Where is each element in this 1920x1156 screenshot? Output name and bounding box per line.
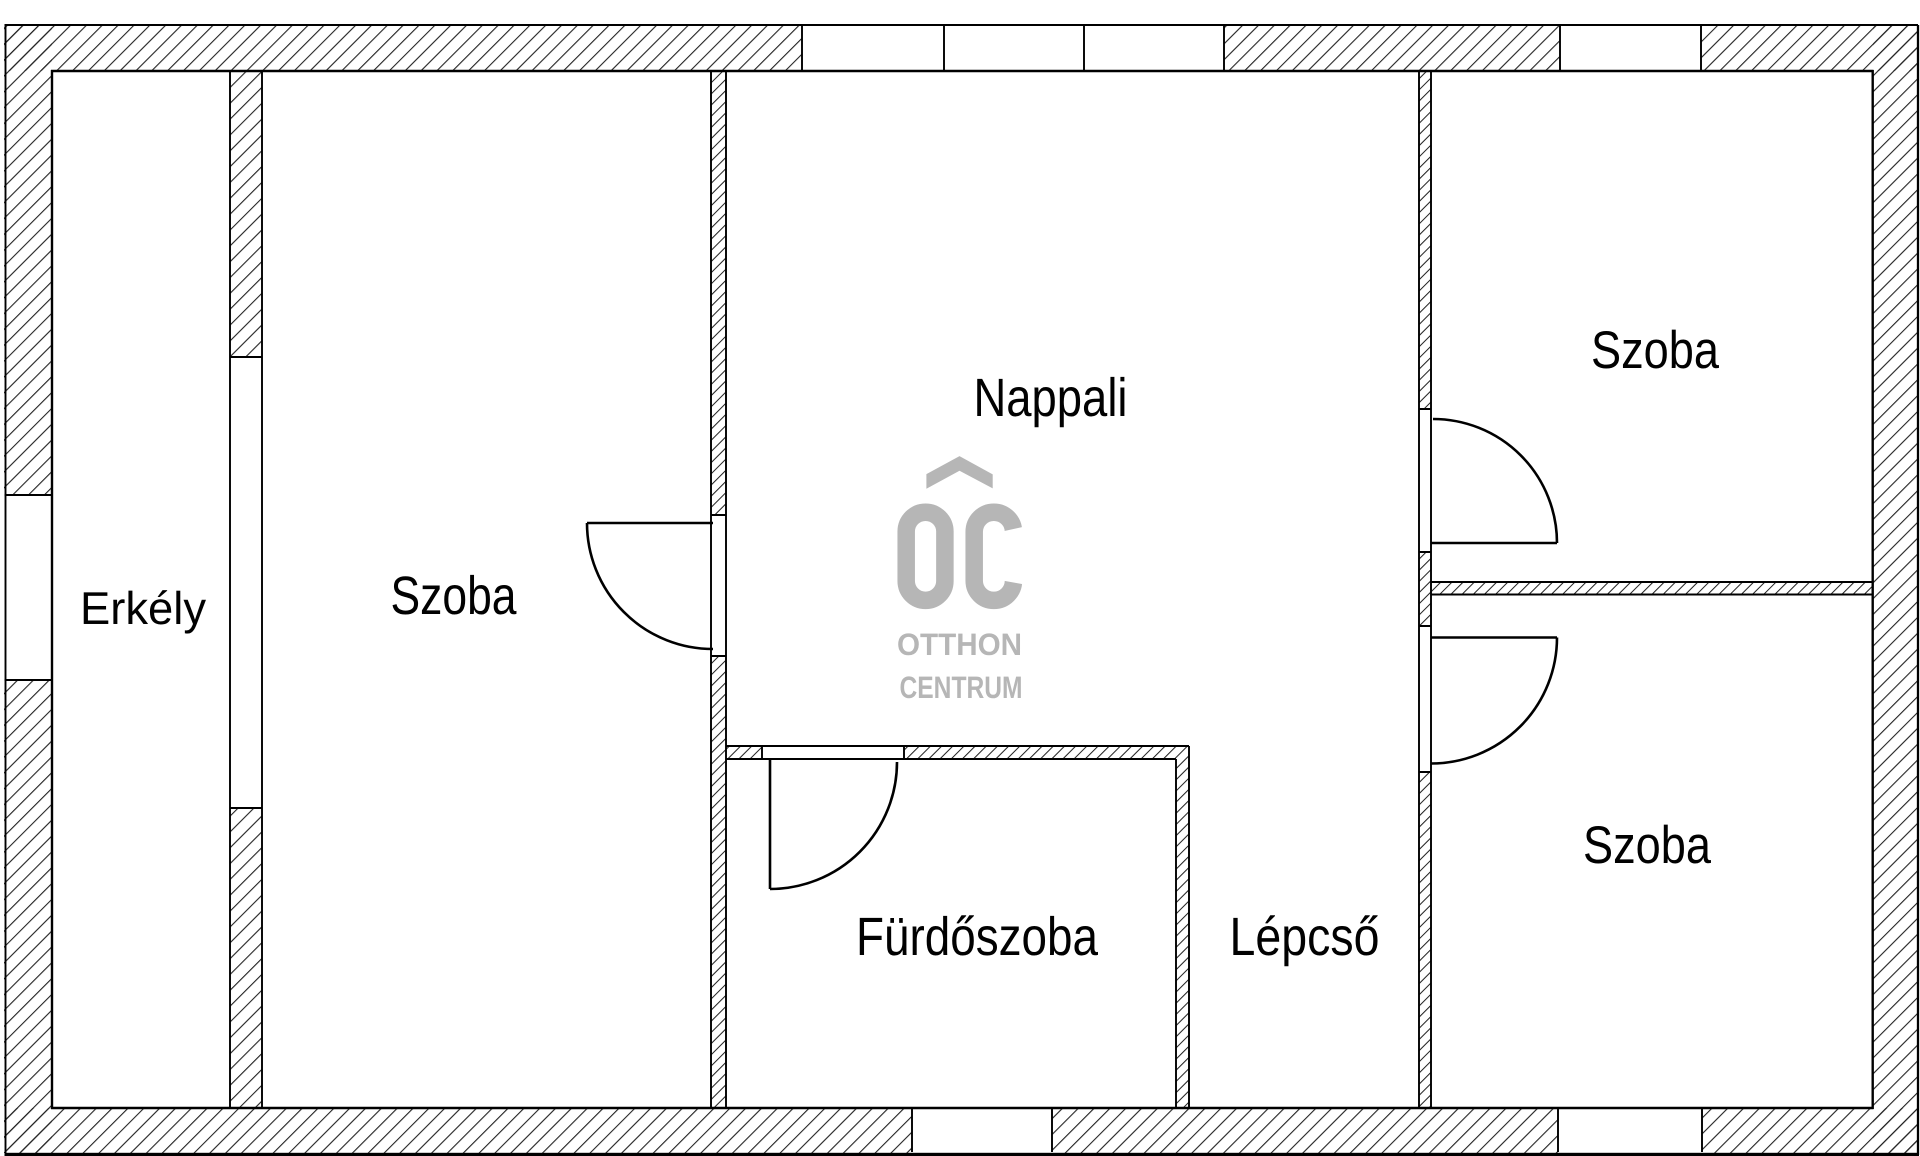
svg-text:Szoba: Szoba: [1591, 321, 1719, 380]
svg-text:Nappali: Nappali: [974, 368, 1128, 428]
svg-text:Szoba: Szoba: [1583, 816, 1711, 875]
svg-text:Erkély: Erkély: [80, 582, 206, 634]
svg-text:Szoba: Szoba: [391, 566, 518, 626]
svg-text:CENTRUM: CENTRUM: [899, 670, 1022, 705]
svg-text:OTTHON: OTTHON: [897, 627, 1022, 662]
svg-text:Lépcső: Lépcső: [1230, 907, 1380, 967]
svg-text:Fürdőszoba: Fürdőszoba: [856, 907, 1099, 967]
